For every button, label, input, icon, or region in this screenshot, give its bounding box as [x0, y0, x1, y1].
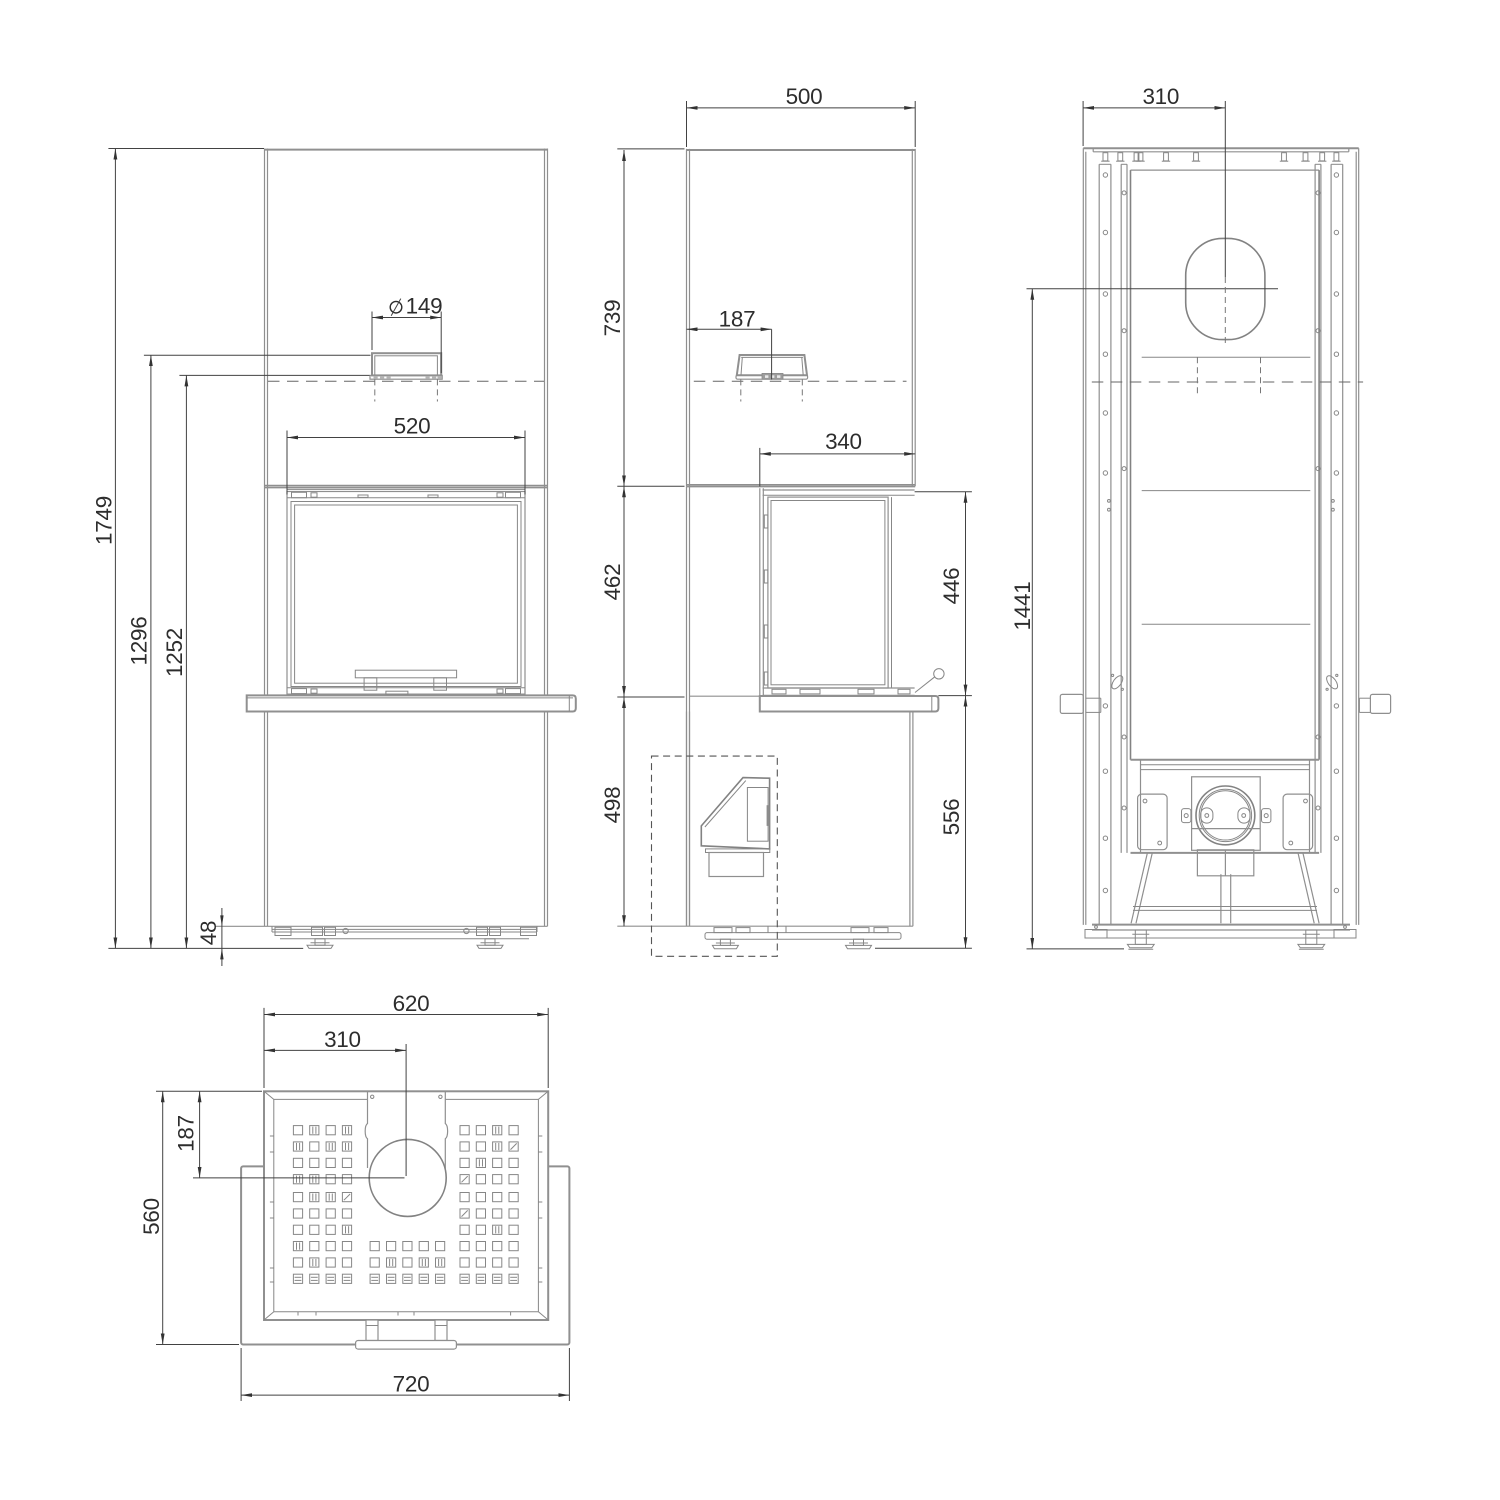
svg-text:310: 310 — [1142, 84, 1179, 109]
svg-text:149: 149 — [406, 294, 443, 319]
svg-text:500: 500 — [786, 84, 823, 109]
svg-text:556: 556 — [939, 799, 964, 836]
svg-text:1749: 1749 — [92, 496, 117, 545]
svg-text:1296: 1296 — [127, 617, 152, 666]
svg-text:498: 498 — [600, 787, 625, 824]
svg-text:560: 560 — [139, 1198, 164, 1235]
svg-text:462: 462 — [600, 564, 625, 601]
svg-text:310: 310 — [324, 1027, 361, 1052]
svg-text:620: 620 — [393, 991, 430, 1016]
svg-text:187: 187 — [174, 1115, 199, 1152]
svg-text:446: 446 — [939, 568, 964, 605]
svg-text:720: 720 — [393, 1372, 430, 1397]
svg-text:1441: 1441 — [1010, 582, 1035, 631]
svg-text:520: 520 — [394, 414, 431, 439]
svg-text:340: 340 — [825, 429, 862, 454]
svg-text:739: 739 — [600, 300, 625, 337]
svg-text:187: 187 — [719, 306, 756, 331]
svg-text:1252: 1252 — [162, 628, 187, 677]
svg-text:48: 48 — [196, 921, 221, 945]
